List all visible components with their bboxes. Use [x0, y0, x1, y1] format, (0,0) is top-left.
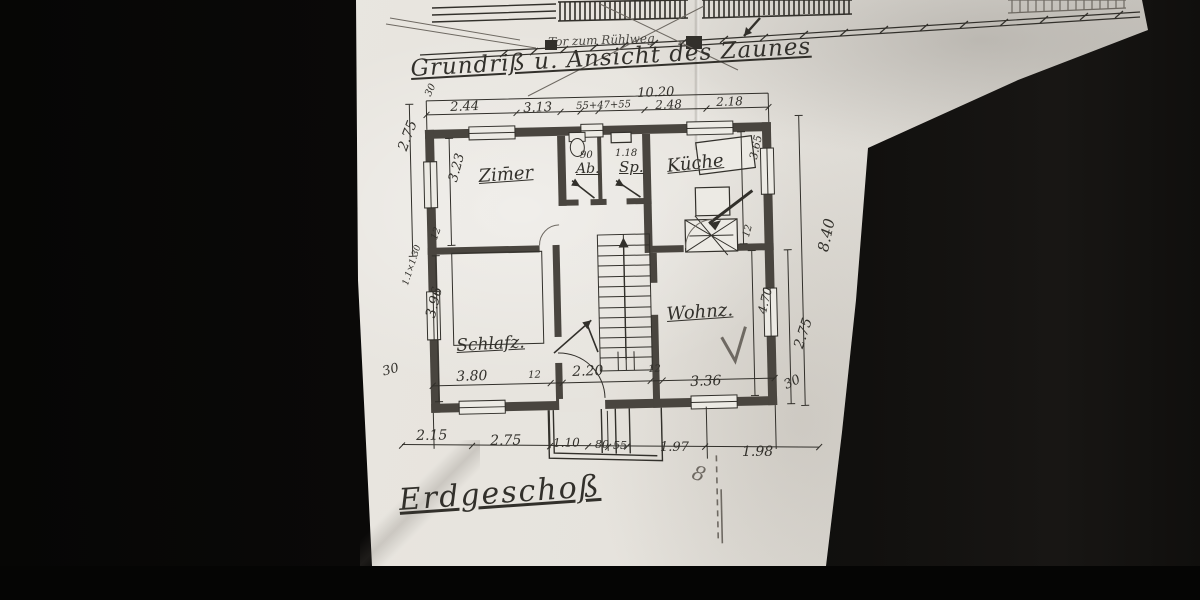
window	[424, 162, 438, 208]
dim-inner-s2: 2.20	[572, 364, 604, 379]
dim-bottom-s2: 2.75	[490, 433, 521, 448]
room-label-abort: Ab.	[576, 162, 600, 176]
pantry-shelf	[611, 132, 631, 142]
door-arrow	[571, 178, 594, 199]
pencil-marks	[713, 327, 750, 544]
photo-of-floor-plan: Tor zum Rühlweg. Grundriß u. Ansicht des…	[0, 0, 1200, 600]
room-label-zimmer: Zim̄er	[478, 164, 534, 186]
dim-bottom-s3: 1.10	[553, 437, 580, 449]
bed	[452, 251, 544, 345]
fence-slats-right	[702, 0, 852, 18]
gate-arrow	[744, 18, 760, 36]
fence-slats-left	[558, 0, 688, 21]
dim-bottom-s6: 1.97	[660, 441, 689, 454]
staircase	[597, 234, 652, 371]
dim-top-s3: 55+47+55	[576, 100, 631, 112]
photo-black-band	[0, 566, 1200, 600]
dim-inner-w1: 12	[528, 371, 541, 381]
window	[760, 148, 774, 194]
window	[687, 121, 733, 135]
dim-bottom-s1: 2.15	[416, 428, 447, 443]
window	[459, 400, 505, 414]
dim-top-s1: 2.44	[450, 100, 479, 114]
dim-bottom-s4: 80	[595, 439, 609, 450]
door-arrow	[615, 178, 640, 198]
dim-inner-w2: 12	[648, 365, 661, 375]
dim-inner-s3: 3.36	[690, 374, 722, 389]
dim-top-s4: 2.48	[655, 98, 682, 111]
room-label-schlafzimmer: Schlafz.	[456, 334, 525, 355]
dim-left-wall30: 30	[381, 362, 400, 379]
dim-bottom-s5: 55	[613, 440, 627, 451]
room-label-speis: Sp.	[619, 160, 644, 175]
dim-bottom-s7: 1.98	[742, 445, 773, 459]
window	[691, 395, 737, 409]
window	[469, 126, 515, 140]
fence-slats-far-right	[1008, 0, 1126, 13]
floor-plan-drawing	[0, 0, 1200, 600]
dim-top-s5: 2.18	[716, 95, 743, 108]
room-label-wohnzimmer: Wohnz.	[666, 301, 734, 324]
dim-ab-width: 90	[580, 151, 593, 161]
dim-top-s2: 3.13	[523, 101, 552, 115]
dim-inner-s1: 3.80	[456, 369, 488, 384]
